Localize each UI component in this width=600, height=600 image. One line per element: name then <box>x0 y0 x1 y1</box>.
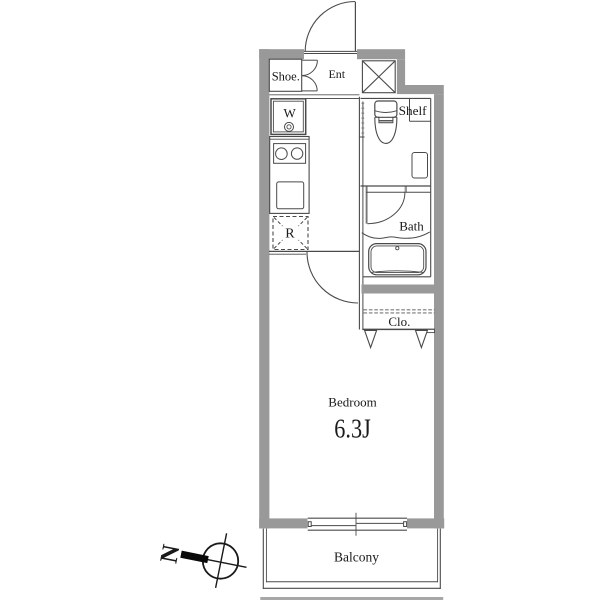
svg-text:Ent: Ent <box>328 67 345 81</box>
svg-text:6.3J: 6.3J <box>334 413 371 444</box>
svg-text:Bath: Bath <box>399 218 424 233</box>
svg-text:R: R <box>285 227 295 242</box>
svg-text:Shoe.: Shoe. <box>272 70 300 84</box>
svg-text:Bedroom: Bedroom <box>328 395 376 410</box>
svg-text:Clo.: Clo. <box>388 314 410 329</box>
svg-text:Shelf: Shelf <box>399 104 428 118</box>
svg-text:W: W <box>284 106 297 121</box>
svg-text:Balcony: Balcony <box>334 550 379 565</box>
